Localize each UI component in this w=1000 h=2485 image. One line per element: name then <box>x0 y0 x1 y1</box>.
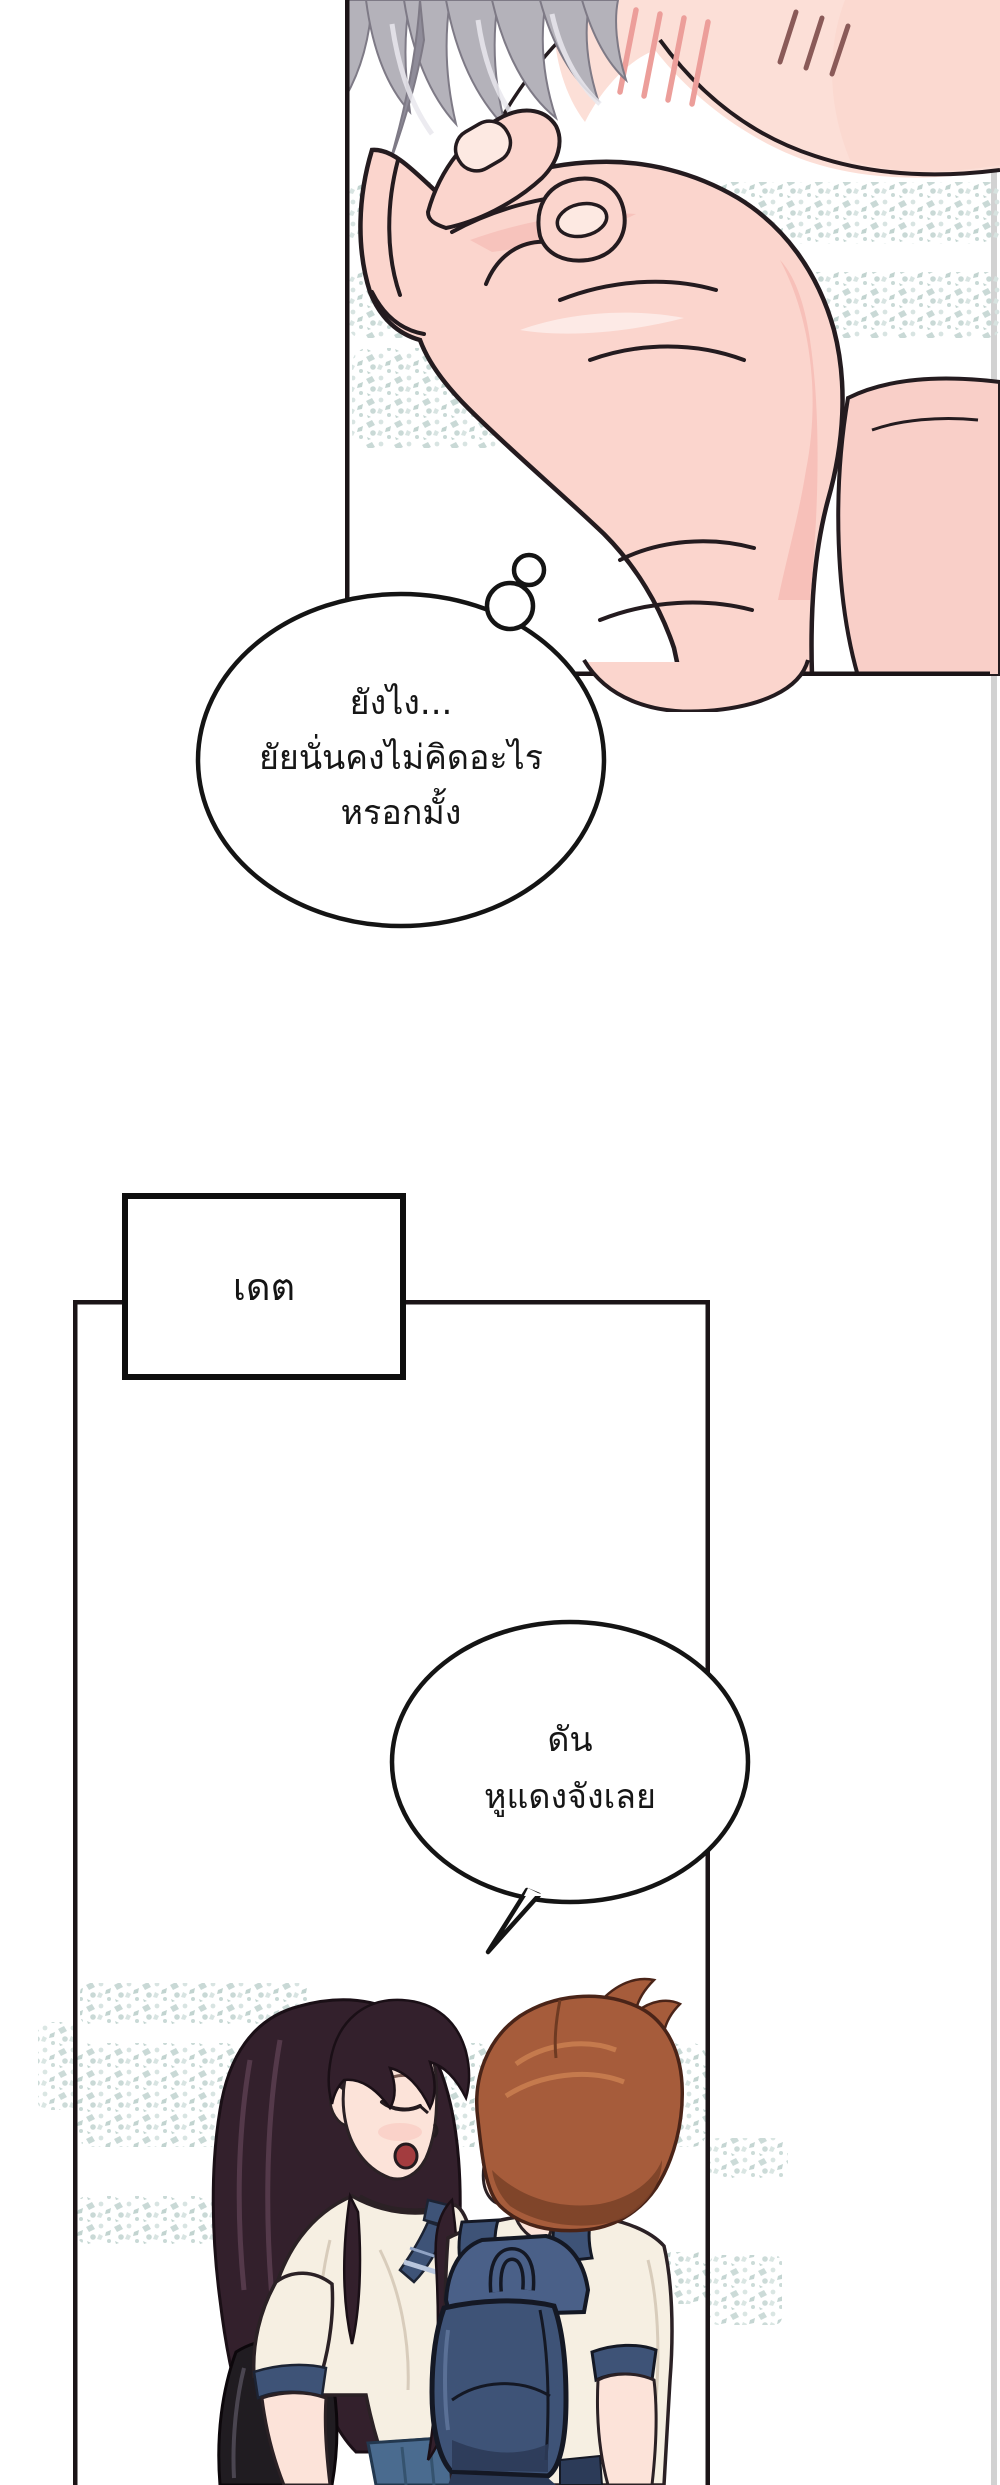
arm <box>597 2374 656 2485</box>
thought-bubble-text: ยังไง... ยัยนั่นคงไม่คิดอะไร หรอกมั้ง <box>220 676 582 841</box>
thought-bubble-bump <box>487 583 533 629</box>
thought-line-3: หรอกมั้ง <box>220 786 582 841</box>
caption-text: เดต <box>233 1256 295 1317</box>
speech-bubble-text: ดัน หูแดงจังเลย <box>420 1712 720 1826</box>
comic-page[interactable]: ยังไง... ยัยนั่นคงไม่คิดอะไร หรอกมั้ง เด… <box>0 0 1000 2485</box>
thought-bubble-dot <box>514 555 544 585</box>
cheek-blush <box>378 2123 422 2141</box>
backpack <box>432 2236 588 2476</box>
shoulder-skin <box>838 379 1000 676</box>
open-mouth <box>395 2144 417 2168</box>
speech-line-2: หูแดงจังเลย <box>420 1769 720 1826</box>
thought-line-1: ยังไง... <box>220 676 582 731</box>
skirt <box>560 2456 602 2485</box>
thought-line-2: ยัยนั่นคงไม่คิดอะไร <box>220 731 582 786</box>
speech-line-1: ดัน <box>420 1712 720 1769</box>
speech-bubble-tail <box>488 1890 539 1952</box>
caption-box: เดต <box>122 1193 406 1380</box>
